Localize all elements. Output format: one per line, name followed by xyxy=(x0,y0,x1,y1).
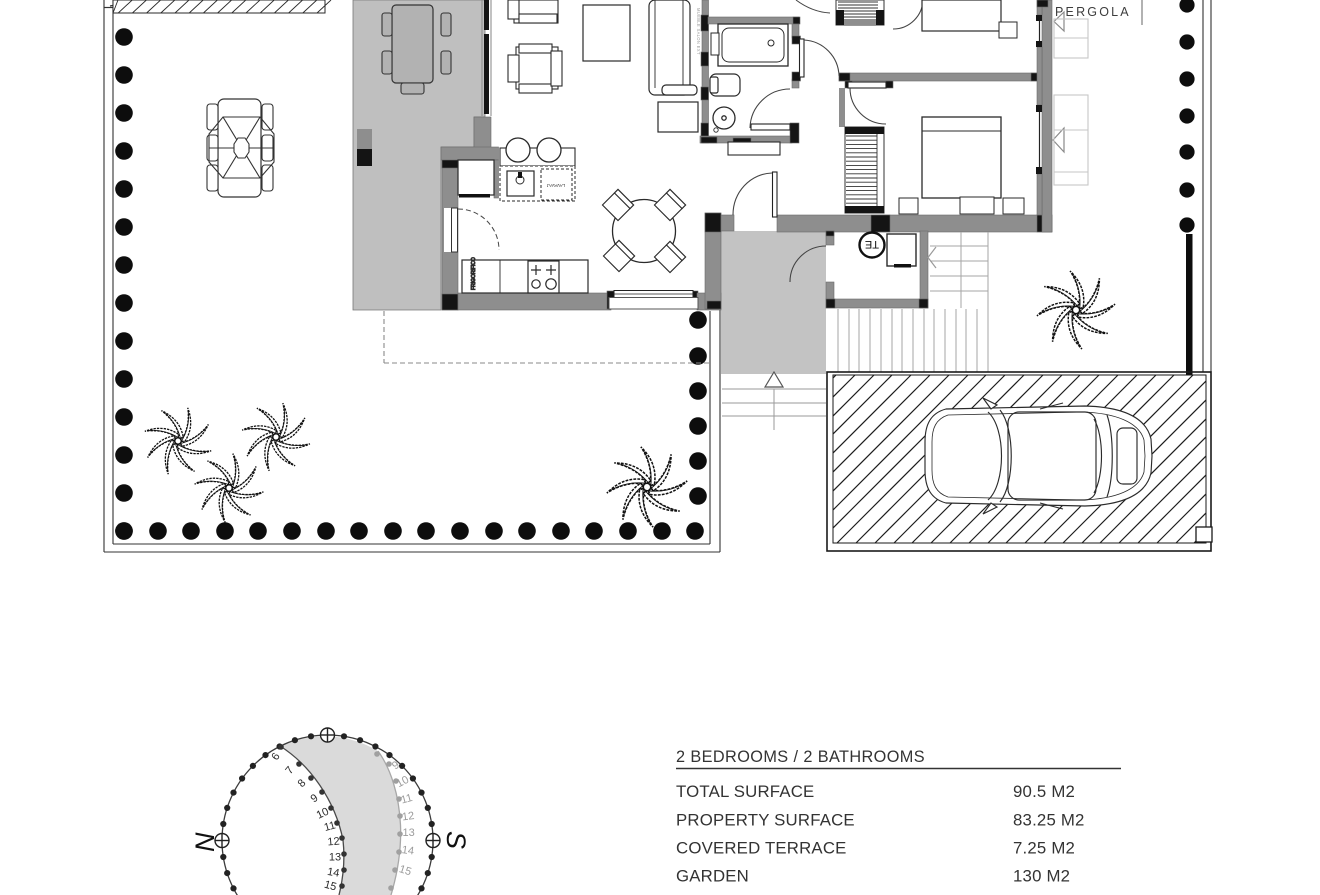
svg-text:12: 12 xyxy=(401,810,415,824)
svg-text:COVERED TERRACE: COVERED TERRACE xyxy=(676,839,847,858)
svg-text:13: 13 xyxy=(402,827,414,839)
svg-text:FRIGORIFICO: FRIGORIFICO xyxy=(471,257,477,290)
svg-text:LAVAVAJ: LAVAVAJ xyxy=(547,183,565,188)
svg-text:130 M2: 130 M2 xyxy=(1013,867,1070,886)
svg-text:7.25 M2: 7.25 M2 xyxy=(1013,839,1075,858)
svg-text:14: 14 xyxy=(326,866,340,880)
svg-text:MUEBLE SALON EXT: MUEBLE SALON EXT xyxy=(696,8,701,55)
svg-text:GARDEN: GARDEN xyxy=(676,867,749,886)
svg-text:83.25 M2: 83.25 M2 xyxy=(1013,811,1085,830)
svg-text:PERGOLA: PERGOLA xyxy=(1055,5,1131,19)
svg-text:PROPERTY SURFACE: PROPERTY SURFACE xyxy=(676,811,855,830)
svg-text:90.5 M2: 90.5 M2 xyxy=(1013,782,1075,801)
svg-text:13: 13 xyxy=(329,851,341,863)
svg-text:14: 14 xyxy=(401,844,415,858)
svg-text:TOTAL SURFACE: TOTAL SURFACE xyxy=(676,782,814,801)
svg-text:12: 12 xyxy=(327,836,340,849)
svg-text:2 BEDROOMS / 2 BATHROOMS: 2 BEDROOMS / 2 BATHROOMS xyxy=(676,748,925,766)
svg-text:N: N xyxy=(190,832,220,852)
svg-text:TE: TE xyxy=(865,238,879,250)
svg-text:S: S xyxy=(441,831,471,849)
